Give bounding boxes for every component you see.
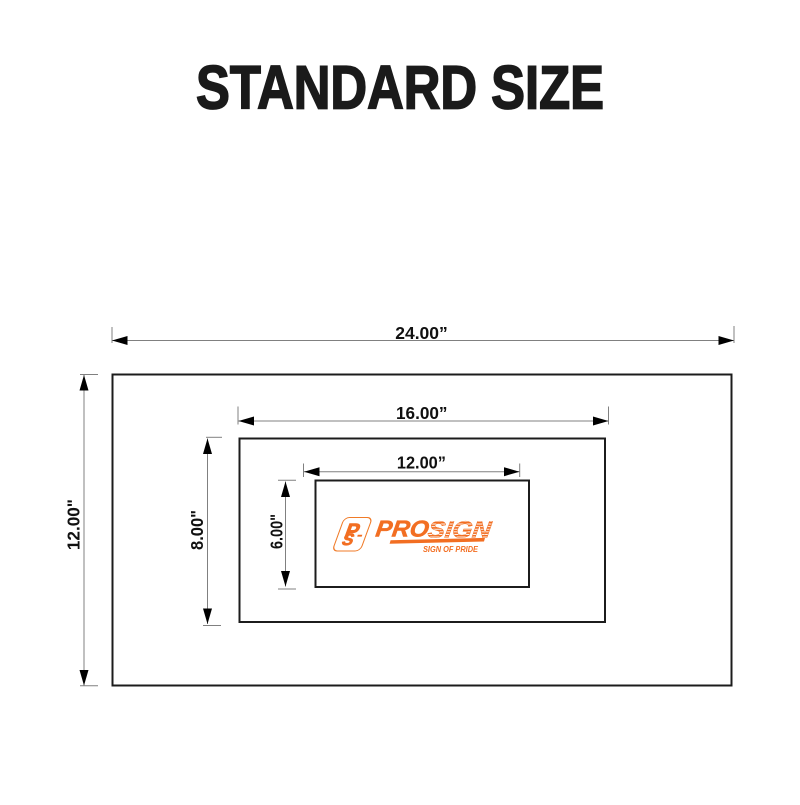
svg-text:SIGN OF PRIDE: SIGN OF PRIDE	[423, 545, 479, 554]
svg-text:12.00”: 12.00”	[397, 453, 446, 473]
svg-text:8.00": 8.00"	[187, 510, 207, 550]
svg-text:6.00": 6.00"	[267, 514, 287, 549]
svg-text:STANDARD SIZE: STANDARD SIZE	[196, 54, 604, 122]
svg-text:PRO: PRO	[374, 516, 431, 542]
svg-text:12.00": 12.00"	[63, 499, 83, 550]
svg-text:16.00”: 16.00”	[396, 403, 448, 423]
svg-text:24.00”: 24.00”	[395, 323, 448, 343]
